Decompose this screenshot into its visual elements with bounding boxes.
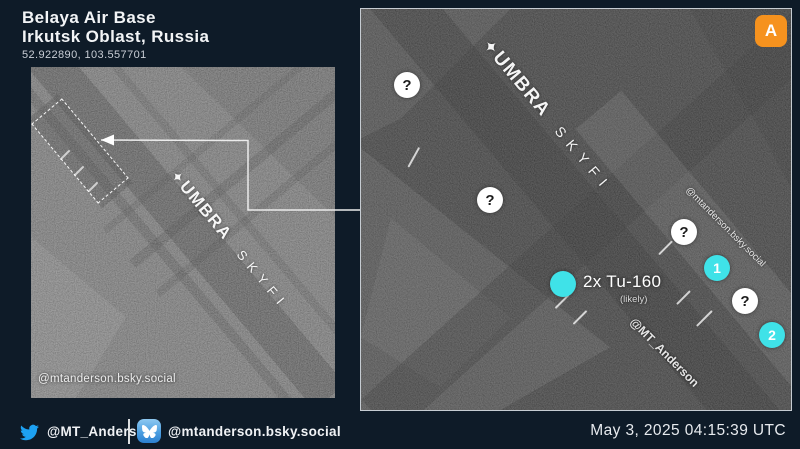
marker-label: 1	[713, 260, 721, 276]
header: Belaya Air Base Irkutsk Oblast, Russia 5…	[22, 8, 209, 61]
marker-label: ?	[679, 224, 688, 241]
page-title: Belaya Air Base	[22, 8, 209, 27]
numbered-marker-1: 1	[704, 255, 730, 281]
question-marker-4: ?	[732, 288, 758, 314]
footer-bar: @MT_Anderson @mtanderson.bsky.social May…	[0, 411, 800, 449]
question-marker-2: ?	[477, 187, 503, 213]
page-subtitle: Irkutsk Oblast, Russia	[22, 27, 209, 46]
question-marker-1: ?	[394, 72, 420, 98]
footer-divider	[128, 419, 130, 444]
panel-label-badge: A	[755, 15, 787, 47]
marker-label: ?	[485, 192, 494, 209]
question-marker-3: ?	[671, 219, 697, 245]
infographic-root: Belaya Air Base Irkutsk Oblast, Russia 5…	[0, 0, 800, 449]
bluesky-icon	[137, 419, 161, 443]
marker-label: 2	[768, 327, 776, 343]
detail-sar-panel: ✦ UMBRA SKYFI @mtanderson.bsky.social @M…	[360, 8, 792, 411]
aircraft-id-qualifier: (likely)	[620, 294, 647, 305]
bluesky-handle: @mtanderson.bsky.social	[168, 424, 341, 439]
detail-sar-texture	[361, 9, 791, 410]
marker-label: ?	[740, 293, 749, 310]
overview-sar-panel: ✦ UMBRA SKYFI @mtanderson.bsky.social	[31, 67, 335, 398]
bluesky-butterfly-icon	[142, 424, 157, 438]
coordinates: 52.922890, 103.557701	[22, 49, 209, 61]
twitter-icon	[18, 423, 41, 442]
marker-label: ?	[402, 77, 411, 94]
aircraft-location-dot	[550, 271, 576, 297]
numbered-marker-2: 2	[759, 322, 785, 348]
aircraft-id-label: 2x Tu-160	[583, 272, 661, 292]
capture-timestamp: May 3, 2025 04:15:39 UTC	[590, 422, 786, 440]
bluesky-watermark: @mtanderson.bsky.social	[38, 373, 176, 385]
